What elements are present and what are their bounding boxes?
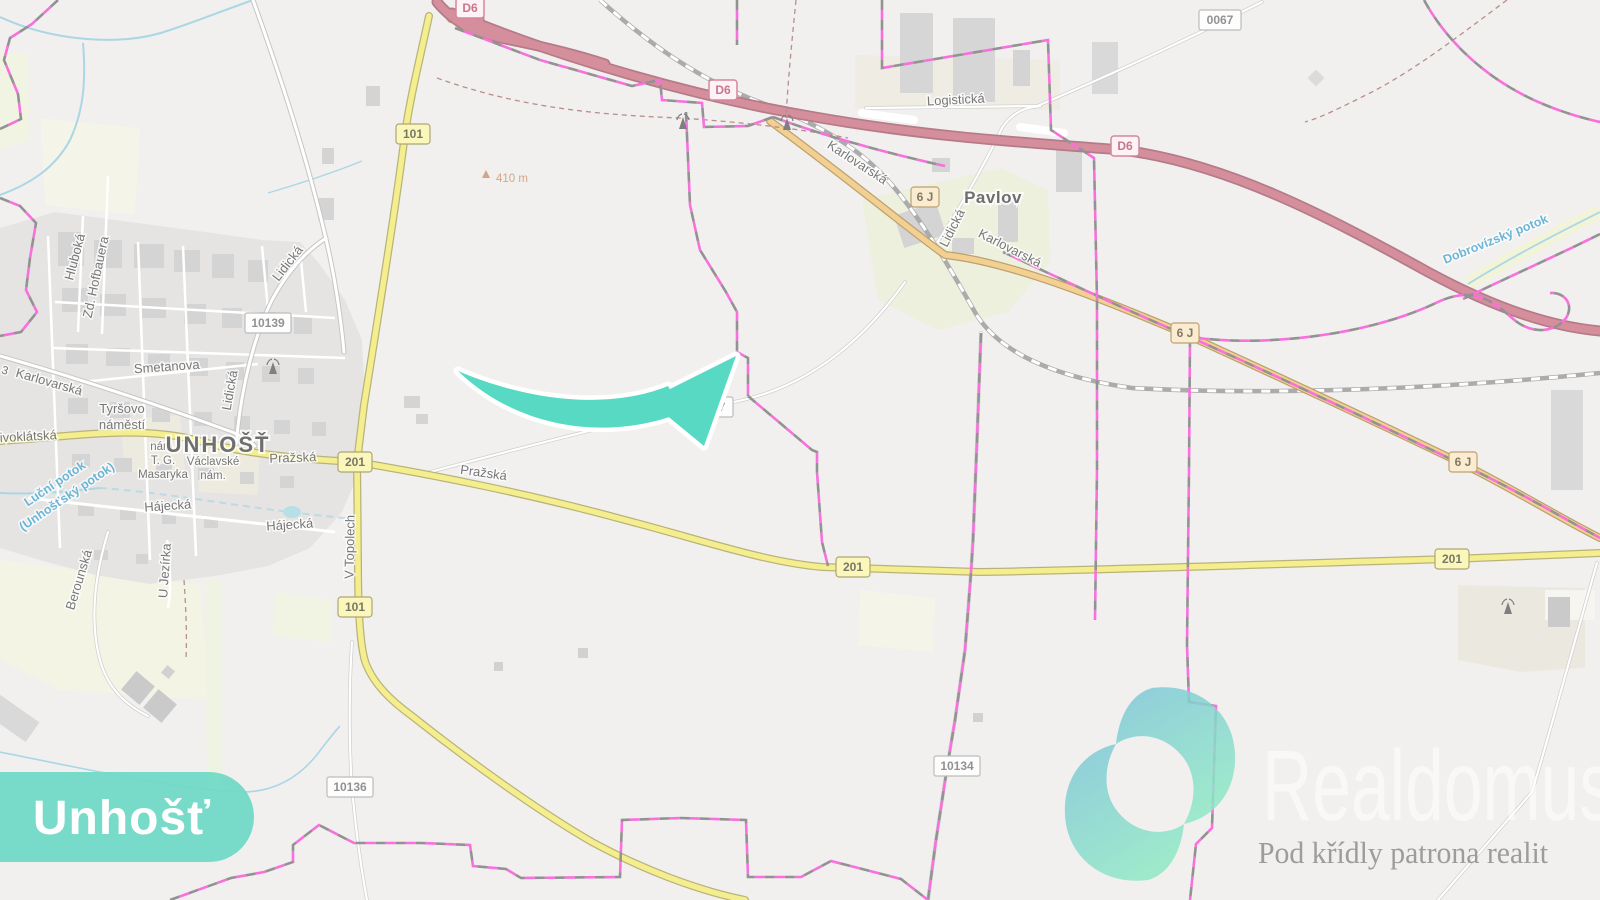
map-screenshot: 410 m D6 D6 D6 101 101 201 201 201 6 J 6… [0, 0, 1600, 900]
town-badge: Unhošť [0, 772, 254, 862]
badge-label: Unhošť [33, 792, 211, 845]
map-canvas[interactable]: 410 m D6 D6 D6 101 101 201 201 201 6 J 6… [0, 0, 1600, 900]
logo-tagline: Pod křídly patrona realit [1258, 835, 1548, 870]
logo-brand-text: Realdomus [1262, 730, 1600, 842]
